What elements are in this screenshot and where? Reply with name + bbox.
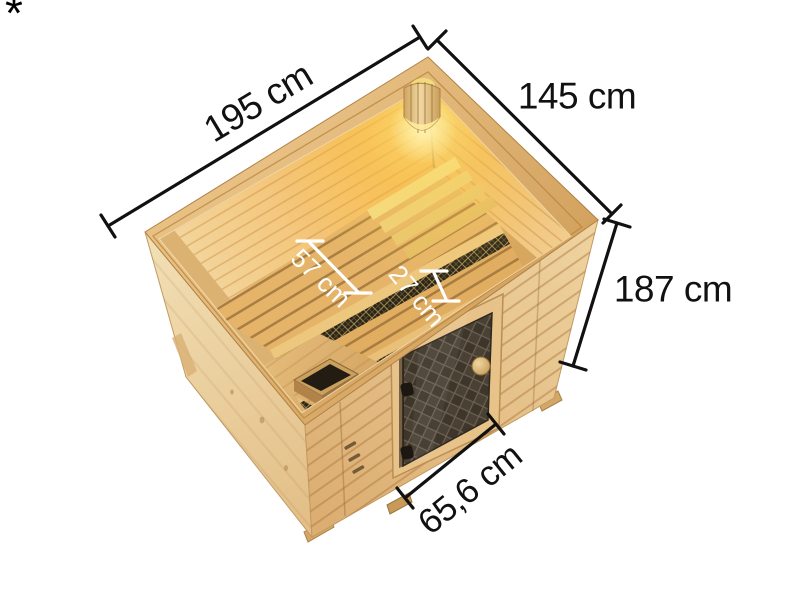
dimension-label-outer-height: 187 cm xyxy=(614,271,732,308)
footnote-asterisk: * xyxy=(5,0,23,36)
dimension-label-outer-depth: 145 cm xyxy=(518,78,636,115)
door-knob xyxy=(472,357,490,375)
product-dimension-diagram: 195 cm 145 cm 187 cm 65,6 cm 57 cm 27 cm… xyxy=(0,0,800,600)
